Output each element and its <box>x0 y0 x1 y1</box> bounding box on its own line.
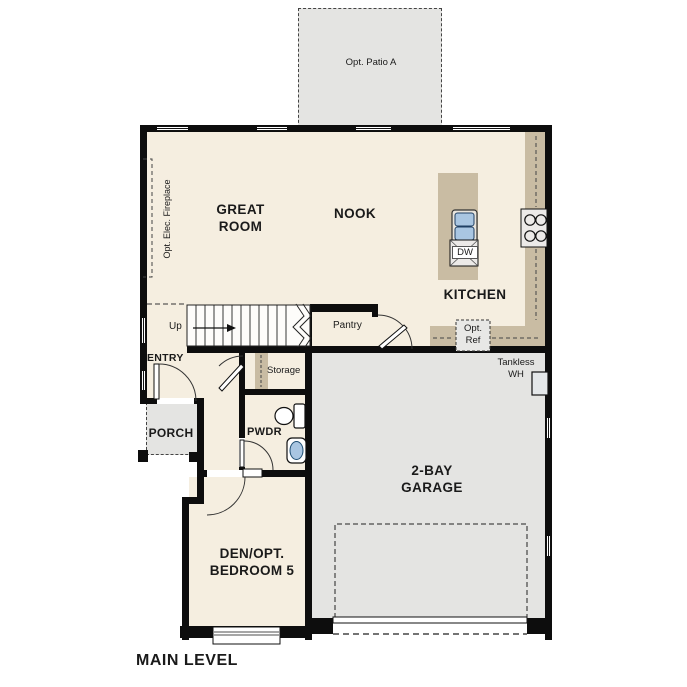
pwdr-sink-icon <box>287 438 306 463</box>
kitchen-label: KITCHEN <box>432 287 518 302</box>
den-window <box>213 627 280 644</box>
porch-label: PORCH <box>145 426 197 440</box>
opt-fireplace-outline <box>143 159 152 277</box>
plan-title: MAIN LEVEL <box>136 652 238 670</box>
storage-door <box>219 356 244 391</box>
entry-label: ENTRY <box>147 352 184 364</box>
cabinet-dashes <box>261 136 541 387</box>
storage-label: Storage <box>267 365 300 376</box>
opt-patio-label: Opt. Patio A <box>338 57 404 68</box>
pwdr-door <box>240 440 273 470</box>
pantry-label: Pantry <box>333 320 362 331</box>
pwdr-label: PWDR <box>247 426 282 438</box>
up-label: Up <box>169 321 182 332</box>
floor-plan: GREAT ROOM NOOK KITCHEN 2-BAY GARAGE DEN… <box>0 0 687 687</box>
dishwasher-label: DW <box>452 246 478 259</box>
cooktop-icon <box>521 209 547 247</box>
garage-door <box>333 617 527 634</box>
opt-ref-label: Opt. Ref <box>456 323 490 346</box>
garage-dashed-area <box>335 524 527 618</box>
den-door <box>207 469 262 515</box>
tankless-wh-label: Tankless WH <box>492 357 540 380</box>
great-room-label: GREAT ROOM <box>178 202 303 235</box>
garage-label: 2-BAY GARAGE <box>382 463 482 496</box>
plan-linework <box>0 0 687 687</box>
kitchen-sink-icon <box>452 210 477 243</box>
entry-door <box>154 364 196 401</box>
den-label: DEN/OPT. BEDROOM 5 <box>192 545 312 579</box>
nook-label: NOOK <box>322 206 388 221</box>
opt-elec-fireplace-label: Opt. Elec. Fireplace <box>162 171 172 267</box>
pantry-door <box>378 315 412 349</box>
toilet-icon <box>275 404 305 428</box>
